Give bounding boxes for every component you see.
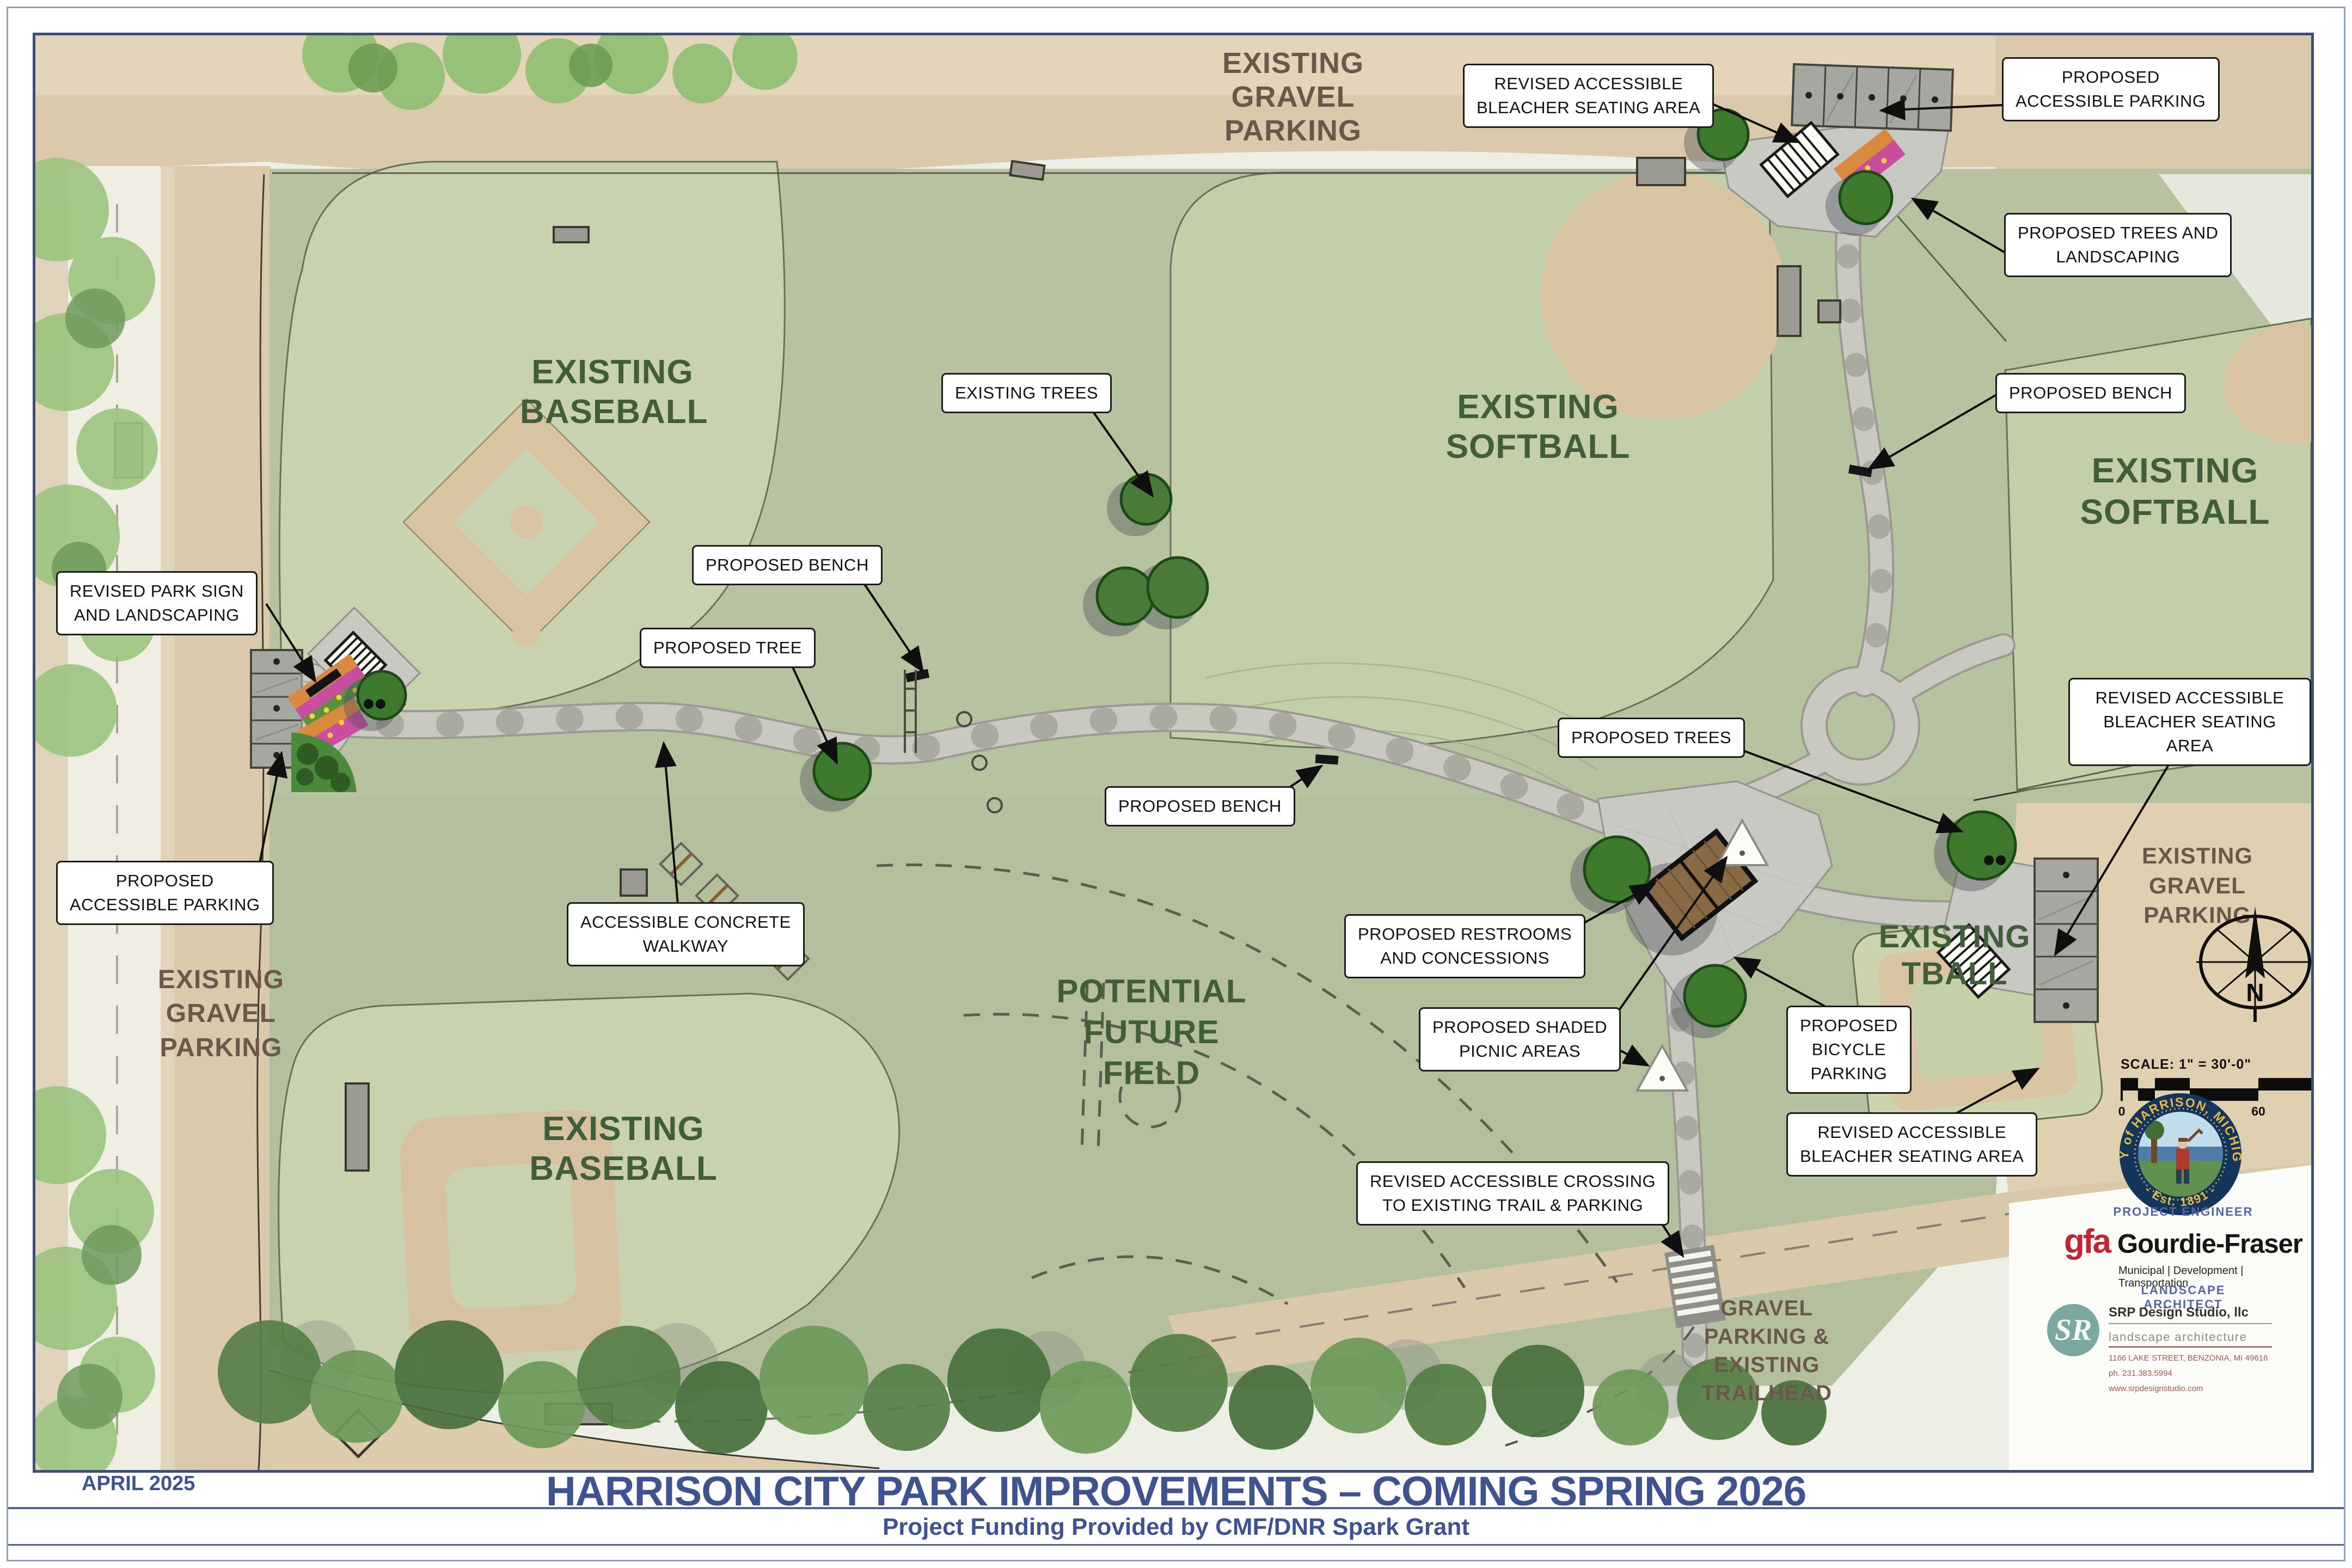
callout-bench-ne: PROPOSED BENCH xyxy=(1995,373,2186,413)
callout-trees-landscaping: PROPOSED TREES AND LANDSCAPING xyxy=(2004,213,2232,277)
callout-bench-c: PROPOSED BENCH xyxy=(1105,786,1295,826)
funding-divider xyxy=(8,1544,2344,1546)
site-plan-drawing xyxy=(35,35,2311,1470)
callout-restrooms: PROPOSED RESTROOMS AND CONCESSIONS xyxy=(1344,914,1585,978)
callout-existing-trees: EXISTING TREES xyxy=(941,373,1112,413)
callout-tree-w: PROPOSED TREE xyxy=(640,628,816,668)
label-existing-softball-e: EXISTING SOFTBALL xyxy=(2066,450,2284,532)
callout-proposed-trees: PROPOSED TREES xyxy=(1558,718,1745,758)
label-existing-baseball-sw: EXISTING BASEBALL xyxy=(525,1109,721,1189)
callout-accessible-parking-ne: PROPOSED ACCESSIBLE PARKING xyxy=(2002,57,2220,121)
architect-phone: ph. 231.383.5994 xyxy=(2109,1367,2172,1380)
north-arrow-compass: N xyxy=(2195,899,2314,1025)
city-seal: CITY of HARRISON, MICHIGAN - Est. 1891 - xyxy=(2118,1092,2243,1217)
callout-accessible-parking-w: PROPOSED ACCESSIBLE PARKING xyxy=(56,861,274,925)
title-divider xyxy=(8,1507,2344,1509)
scale-tick-60: 60 xyxy=(2251,1104,2265,1119)
label-existing-baseball-nw: EXISTING BASEBALL xyxy=(520,352,705,432)
plan-sheet: EXISTING GRAVEL PARKING EXISTING GRAVEL … xyxy=(0,0,2352,1568)
callout-accessible-crossing: REVISED ACCESSIBLE CROSSING TO EXISTING … xyxy=(1356,1161,1669,1226)
funding-note: Project Funding Provided by CMF/DNR Spar… xyxy=(0,1514,2352,1541)
architect-name: SRP Design Studio, llc xyxy=(2109,1305,2272,1324)
callout-concrete-walkway: ACCESSIBLE CONCRETE WALKWAY xyxy=(567,902,805,966)
compass-north-letter: N xyxy=(2246,978,2264,1007)
callout-bench-w: PROPOSED BENCH xyxy=(692,545,883,585)
scale-label: SCALE: 1" = 30'-0" xyxy=(2121,1057,2314,1073)
site-plan-map: EXISTING GRAVEL PARKING EXISTING GRAVEL … xyxy=(33,33,2314,1473)
label-gravel-parking-trailhead: GRAVEL PARKING & EXISTING TRAILHEAD xyxy=(1690,1294,1843,1407)
callout-bleacher-seating-e: REVISED ACCESSIBLE BLEACHER SEATING AREA xyxy=(2068,678,2311,766)
callout-park-sign: REVISED PARK SIGN AND LANDSCAPING xyxy=(56,571,258,635)
callout-bleacher-seating-se: REVISED ACCESSIBLE BLEACHER SEATING AREA xyxy=(1786,1112,2037,1177)
architect-address: 1166 LAKE STREET, BENZONIA, MI 49616 xyxy=(2109,1352,2268,1364)
label-existing-tball: EXISTING TBALL xyxy=(1870,918,2039,993)
label-existing-gravel-parking-top: EXISTING GRAVEL PARKING xyxy=(1162,46,1424,148)
callout-bicycle-parking: PROPOSED BICYCLE PARKING xyxy=(1786,1006,1912,1094)
architect-website: www.srpdesignstudio.com xyxy=(2109,1382,2203,1395)
project-engineer-heading: PROJECT ENGINEER xyxy=(2104,1205,2262,1219)
label-potential-future-field: POTENTIAL FUTURE FIELD xyxy=(1043,971,1260,1093)
callout-picnic-areas: PROPOSED SHADED PICNIC AREAS xyxy=(1419,1007,1621,1071)
gfa-logo: gfa xyxy=(2064,1222,2110,1261)
label-existing-softball-n: EXISTING SOFTBALL xyxy=(1435,387,1641,467)
engineer-name: Gourdie-Fraser xyxy=(2117,1229,2302,1259)
callout-bleacher-seating-top: REVISED ACCESSIBLE BLEACHER SEATING AREA xyxy=(1463,64,1714,128)
label-existing-gravel-parking-left: EXISTING GRAVEL PARKING xyxy=(142,963,300,1065)
architect-subtitle: landscape architecture xyxy=(2109,1330,2272,1347)
srp-logo: SR xyxy=(2047,1304,2099,1356)
